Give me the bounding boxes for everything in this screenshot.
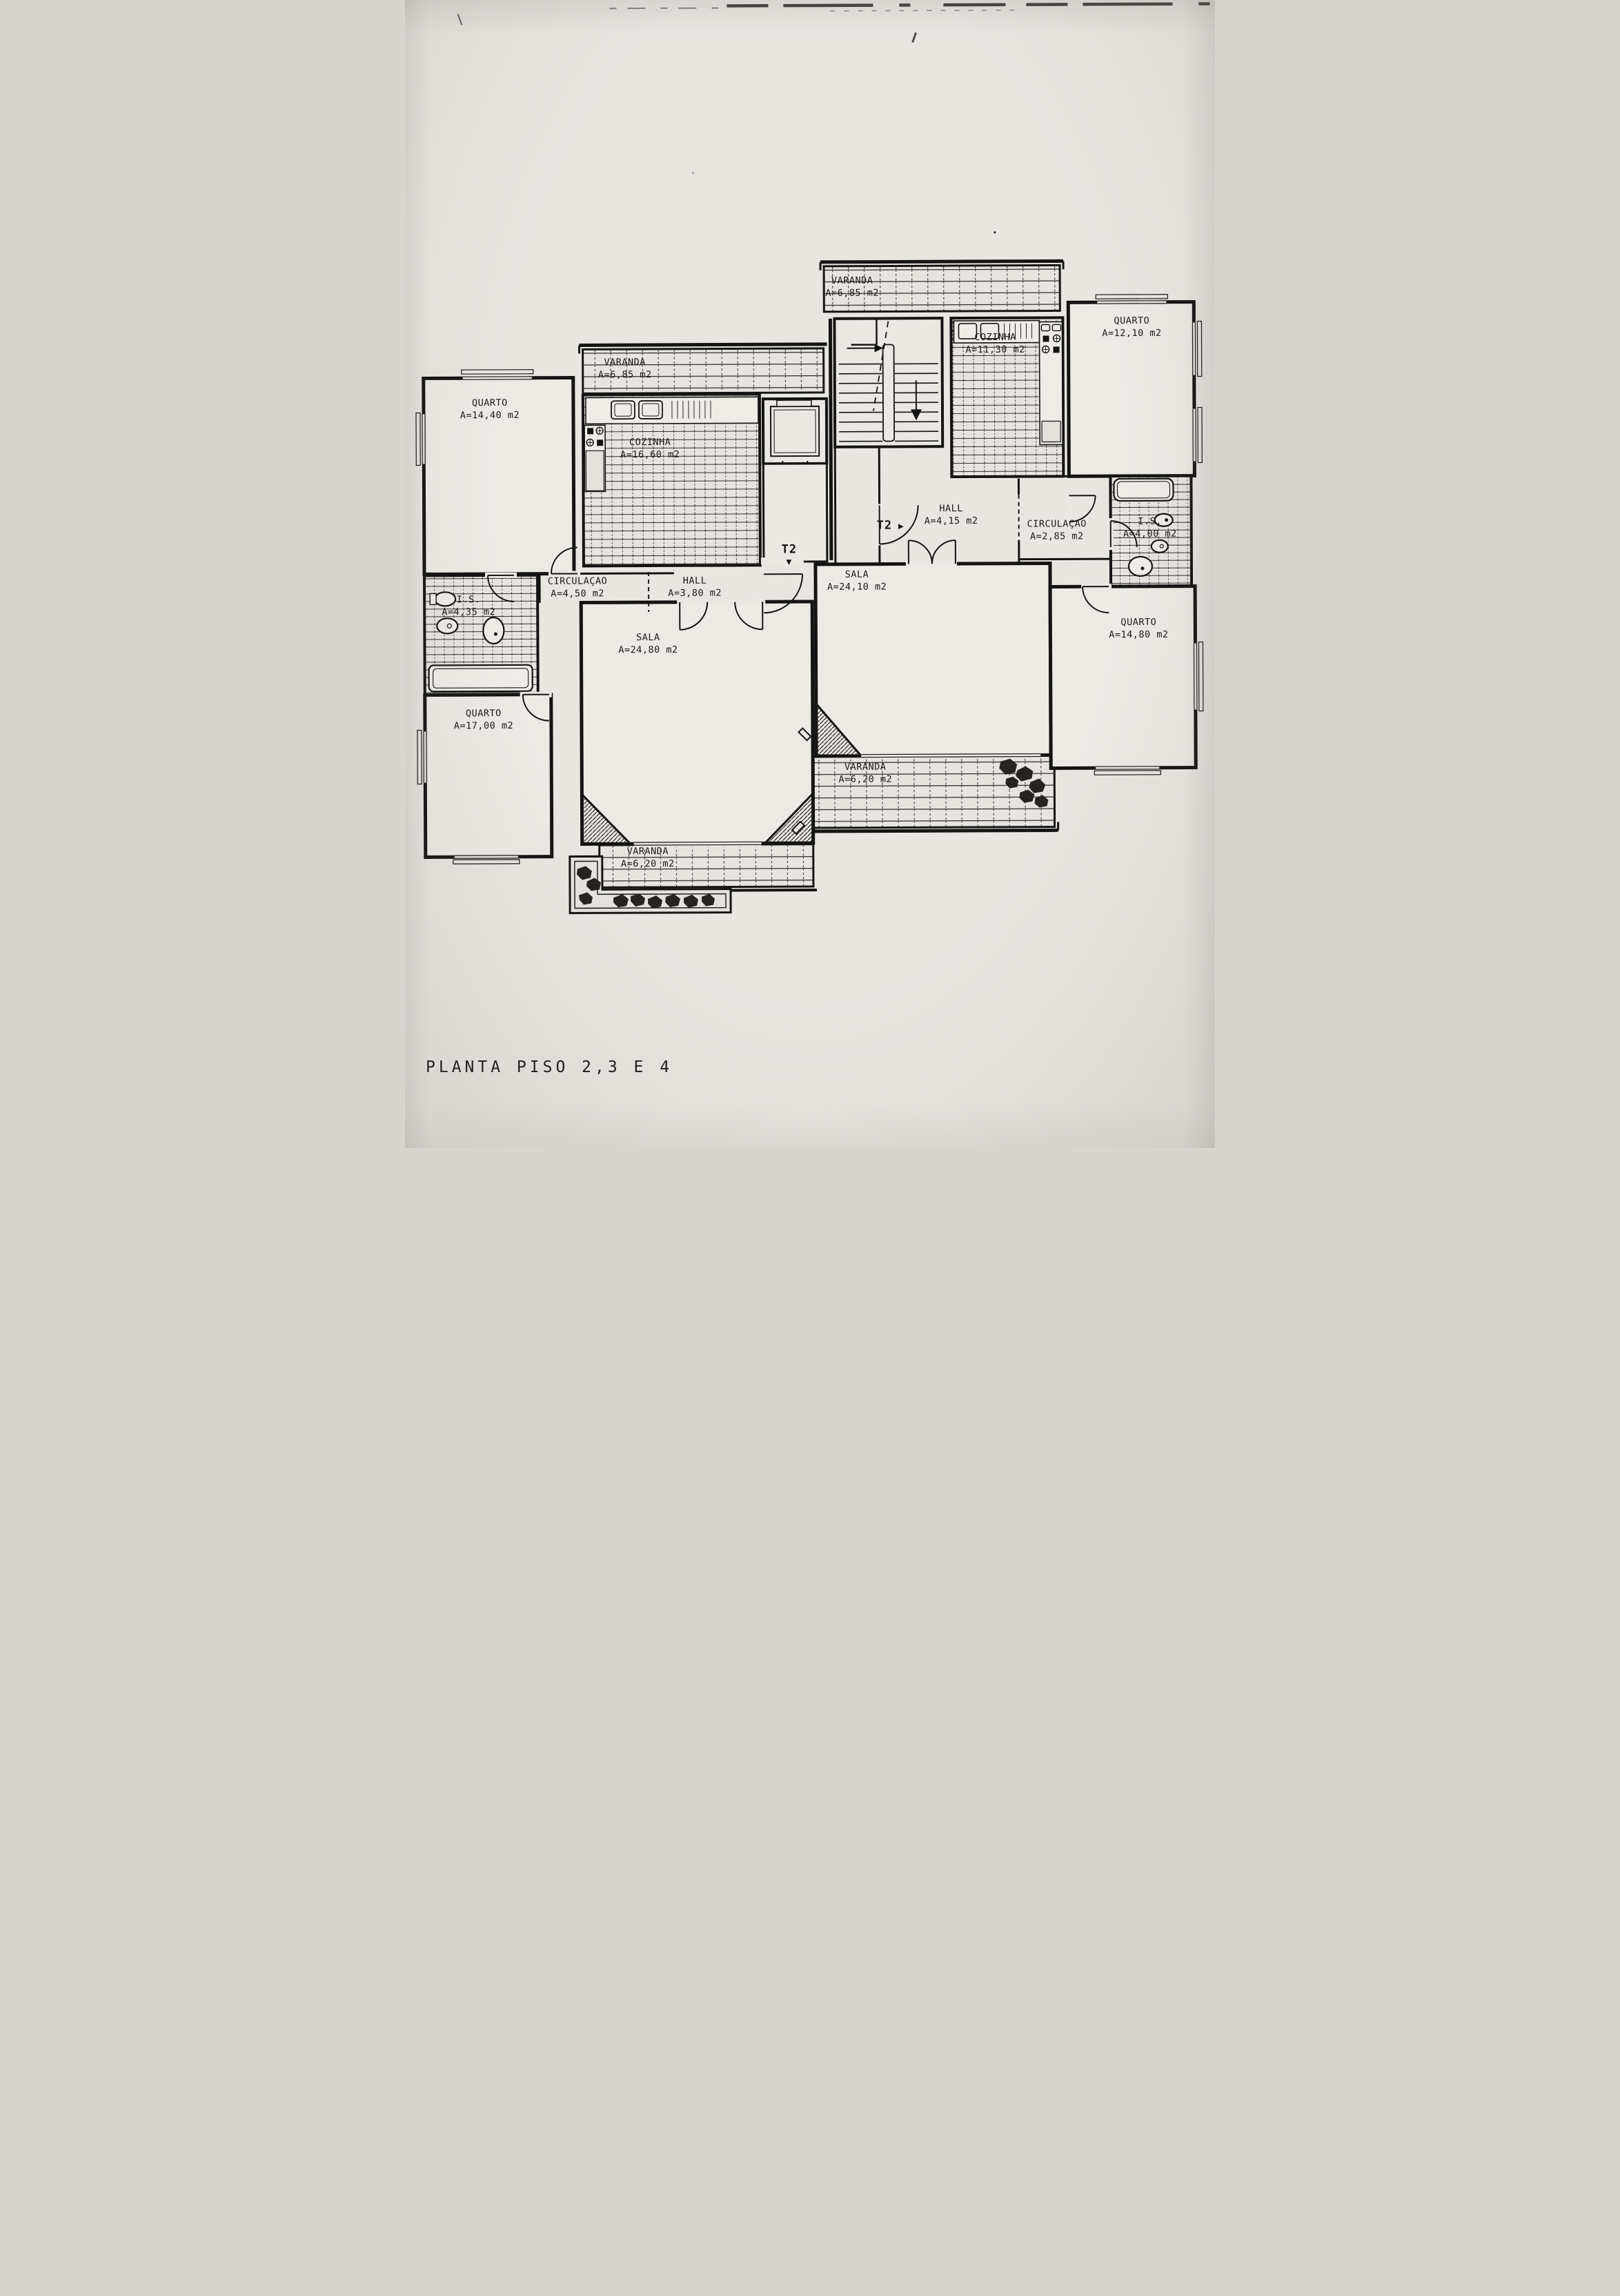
drawing-title: PLANTA PISO 2,3 E 4 bbox=[426, 1058, 673, 1076]
washbasin bbox=[483, 617, 504, 644]
window-quarto-top-right-side bbox=[1190, 321, 1201, 377]
window-quarto-bottom-left-bottom bbox=[453, 853, 520, 864]
balcony-left bbox=[580, 344, 827, 394]
room-quarto-top-left bbox=[424, 377, 574, 574]
scan-artifacts bbox=[457, 3, 1213, 235]
room-sala-left bbox=[581, 602, 813, 844]
floorplan-drawing bbox=[405, 0, 1215, 1148]
balcony-top bbox=[820, 261, 1063, 312]
window-sala-right-balcony bbox=[861, 753, 1040, 760]
window-quarto-top-right-top bbox=[1096, 295, 1167, 306]
stair-well bbox=[883, 344, 895, 441]
window-quarto-top-left-side bbox=[416, 413, 427, 465]
door-sala-right-double bbox=[909, 540, 956, 564]
room-sala-right bbox=[816, 563, 1051, 755]
room-quarto-bottom-right bbox=[1050, 586, 1196, 769]
kitchen-left-counter bbox=[586, 397, 758, 424]
window-quarto-top-right-side2 bbox=[1191, 408, 1202, 463]
scanned-floorplan-page: VARANDAA=6,85 m2QUARTOA=12,10 m2COZINHAA… bbox=[405, 0, 1215, 1148]
elevator bbox=[763, 399, 827, 562]
kitchen-right-counter bbox=[954, 321, 1039, 344]
toilet bbox=[1155, 514, 1173, 526]
window-sala-left-balcony bbox=[634, 840, 762, 847]
room-quarto-top-right bbox=[1068, 302, 1194, 477]
room-quarto-bottom-left bbox=[425, 695, 552, 858]
door-quarto-top-right bbox=[1069, 495, 1096, 522]
balcony-bottom bbox=[596, 840, 817, 891]
door-entry-right bbox=[880, 505, 918, 544]
window-quarto-top-left-top bbox=[462, 370, 533, 382]
window-quarto-bottom-right-side bbox=[1192, 642, 1203, 711]
window-quarto-bottom-right-bottom bbox=[1094, 764, 1160, 775]
fridge bbox=[586, 451, 604, 491]
window-quarto-bottom-left-side bbox=[417, 730, 428, 784]
fridge bbox=[1042, 421, 1060, 442]
staircase bbox=[834, 318, 942, 447]
toilet bbox=[435, 592, 455, 606]
kitchen-right-appliances bbox=[1039, 321, 1063, 444]
floorplan: VARANDAA=6,85 m2QUARTOA=12,10 m2COZINHAA… bbox=[405, 0, 1215, 1148]
washbasin bbox=[1129, 557, 1152, 576]
entry-lobby bbox=[763, 464, 827, 562]
kitchen-left-appliances bbox=[584, 425, 605, 491]
